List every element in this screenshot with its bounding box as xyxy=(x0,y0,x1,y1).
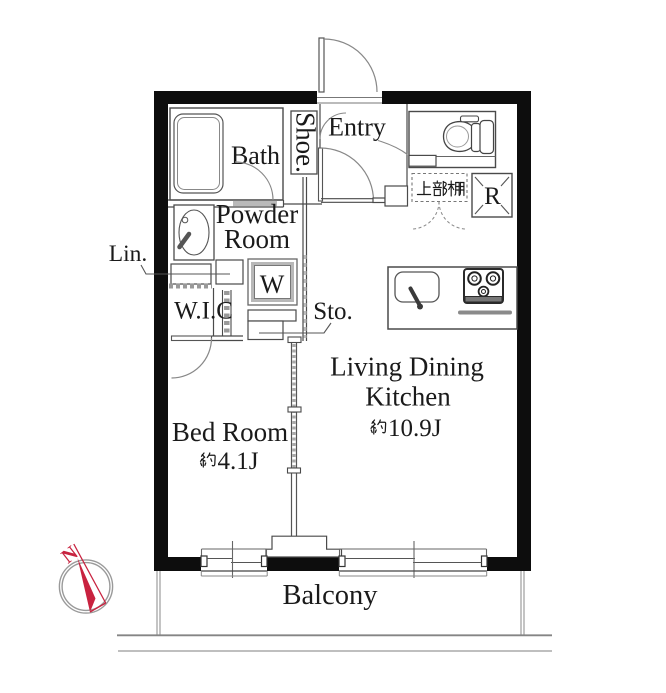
svg-text:Room: Room xyxy=(224,224,290,254)
svg-text:Balcony: Balcony xyxy=(283,580,379,611)
svg-text:Entry: Entry xyxy=(328,113,386,142)
svg-text:Bed Room: Bed Room xyxy=(172,417,288,447)
svg-text:Sto.: Sto. xyxy=(313,298,353,325)
svg-text:10.9J: 10.9J xyxy=(388,415,442,442)
svg-text:Bath: Bath xyxy=(231,141,280,170)
svg-text:Kitchen: Kitchen xyxy=(365,382,451,412)
svg-text:Shoe.: Shoe. xyxy=(291,112,321,173)
svg-text:R: R xyxy=(484,183,501,210)
svg-text:4.1J: 4.1J xyxy=(218,448,259,475)
svg-text:W: W xyxy=(260,270,285,299)
svg-text:W.I.C: W.I.C xyxy=(174,298,233,325)
svg-text:Living Dining: Living Dining xyxy=(330,352,484,382)
svg-text:Lin.: Lin. xyxy=(109,241,148,267)
